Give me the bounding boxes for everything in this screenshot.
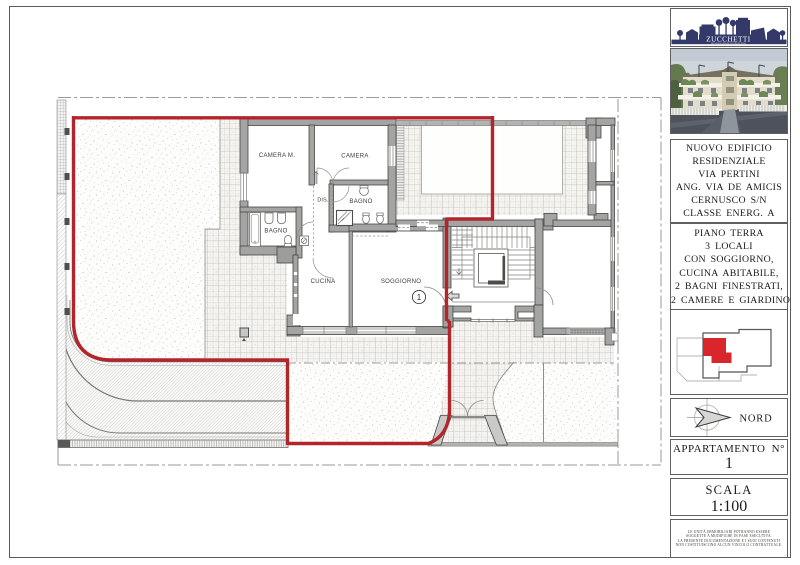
svg-text:ZUCCHETTI: ZUCCHETTI <box>706 35 751 43</box>
svg-text:DIS.: DIS. <box>317 198 328 204</box>
svg-text:SOGGIORNO: SOGGIORNO <box>381 279 421 285</box>
svg-text:NORD: NORD <box>740 413 773 424</box>
svg-text:CAMERA: CAMERA <box>341 154 368 160</box>
svg-text:BAGNO: BAGNO <box>349 199 372 205</box>
svg-text:BAGNO: BAGNO <box>264 229 287 235</box>
svg-text:1: 1 <box>417 293 422 302</box>
svg-text:CAMERA M.: CAMERA M. <box>259 153 295 159</box>
svg-text:CUCINA: CUCINA <box>311 279 336 285</box>
svg-text:REALIZZAZIONI DI PRESTIGIO: REALIZZAZIONI DI PRESTIGIO <box>711 42 746 45</box>
